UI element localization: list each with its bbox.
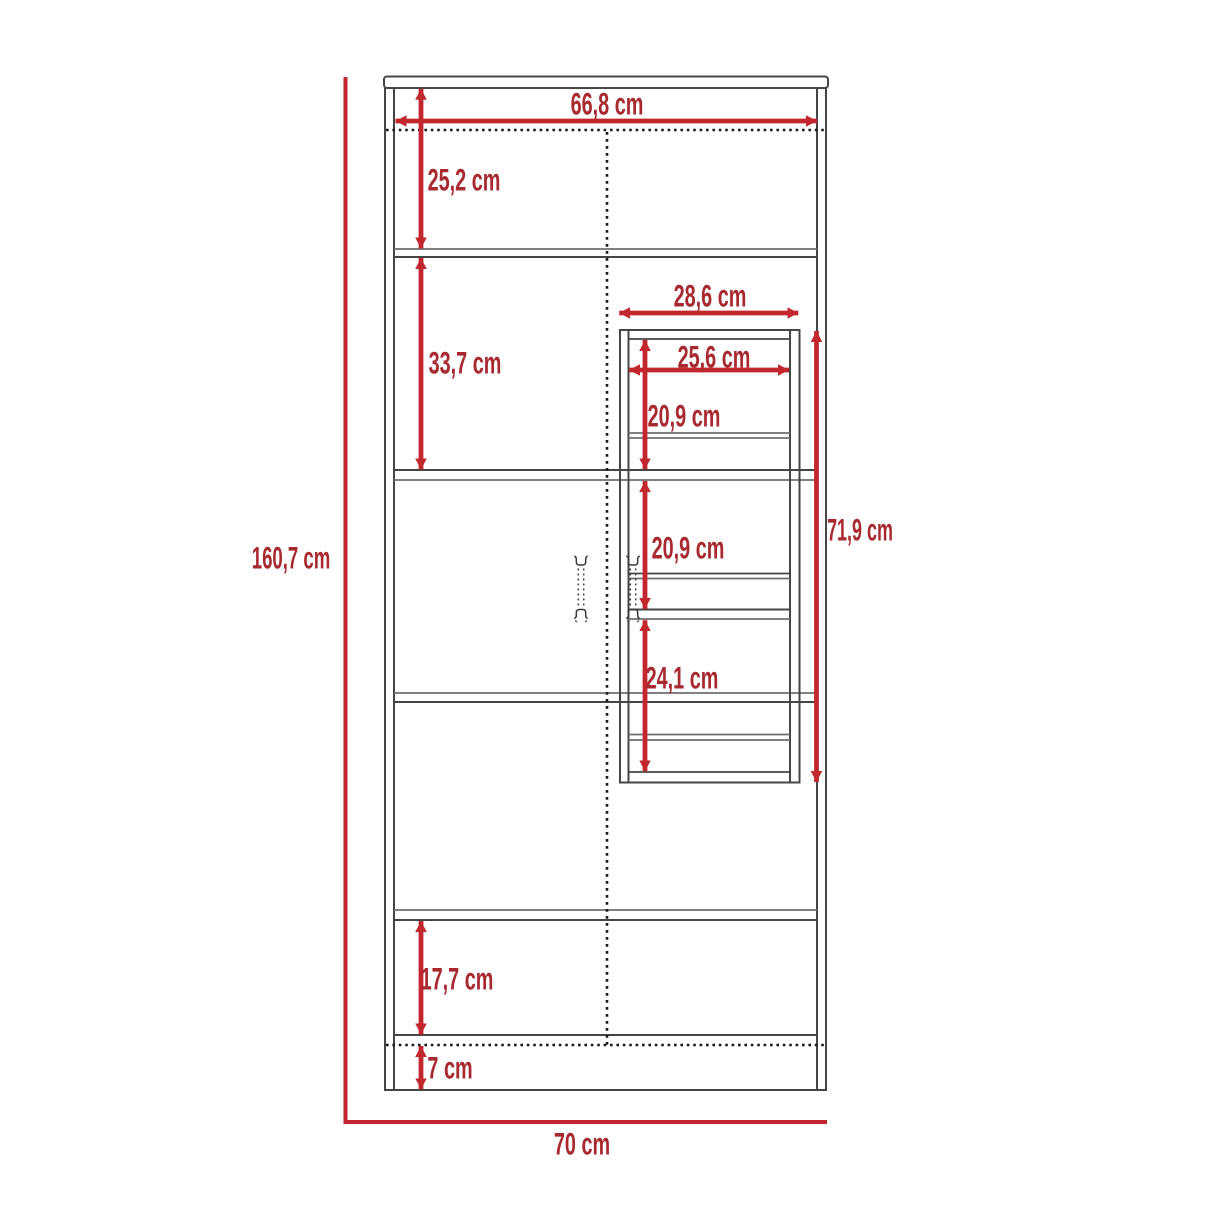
svg-text:24,1 cm: 24,1 cm bbox=[646, 660, 719, 696]
svg-text:160,7 cm: 160,7 cm bbox=[252, 542, 331, 576]
svg-text:25,6 cm: 25,6 cm bbox=[678, 339, 751, 375]
svg-text:20,9 cm: 20,9 cm bbox=[648, 398, 721, 434]
svg-text:70 cm: 70 cm bbox=[554, 1126, 610, 1162]
svg-text:71,9 cm: 71,9 cm bbox=[827, 513, 893, 547]
svg-text:17,7 cm: 17,7 cm bbox=[421, 961, 494, 997]
svg-text:20,9 cm: 20,9 cm bbox=[652, 530, 725, 566]
svg-text:66,8 cm: 66,8 cm bbox=[571, 86, 644, 122]
svg-text:25,2 cm: 25,2 cm bbox=[428, 162, 501, 198]
svg-text:28,6 cm: 28,6 cm bbox=[674, 278, 747, 314]
svg-text:7 cm: 7 cm bbox=[427, 1050, 472, 1086]
svg-text:33,7 cm: 33,7 cm bbox=[429, 345, 502, 381]
